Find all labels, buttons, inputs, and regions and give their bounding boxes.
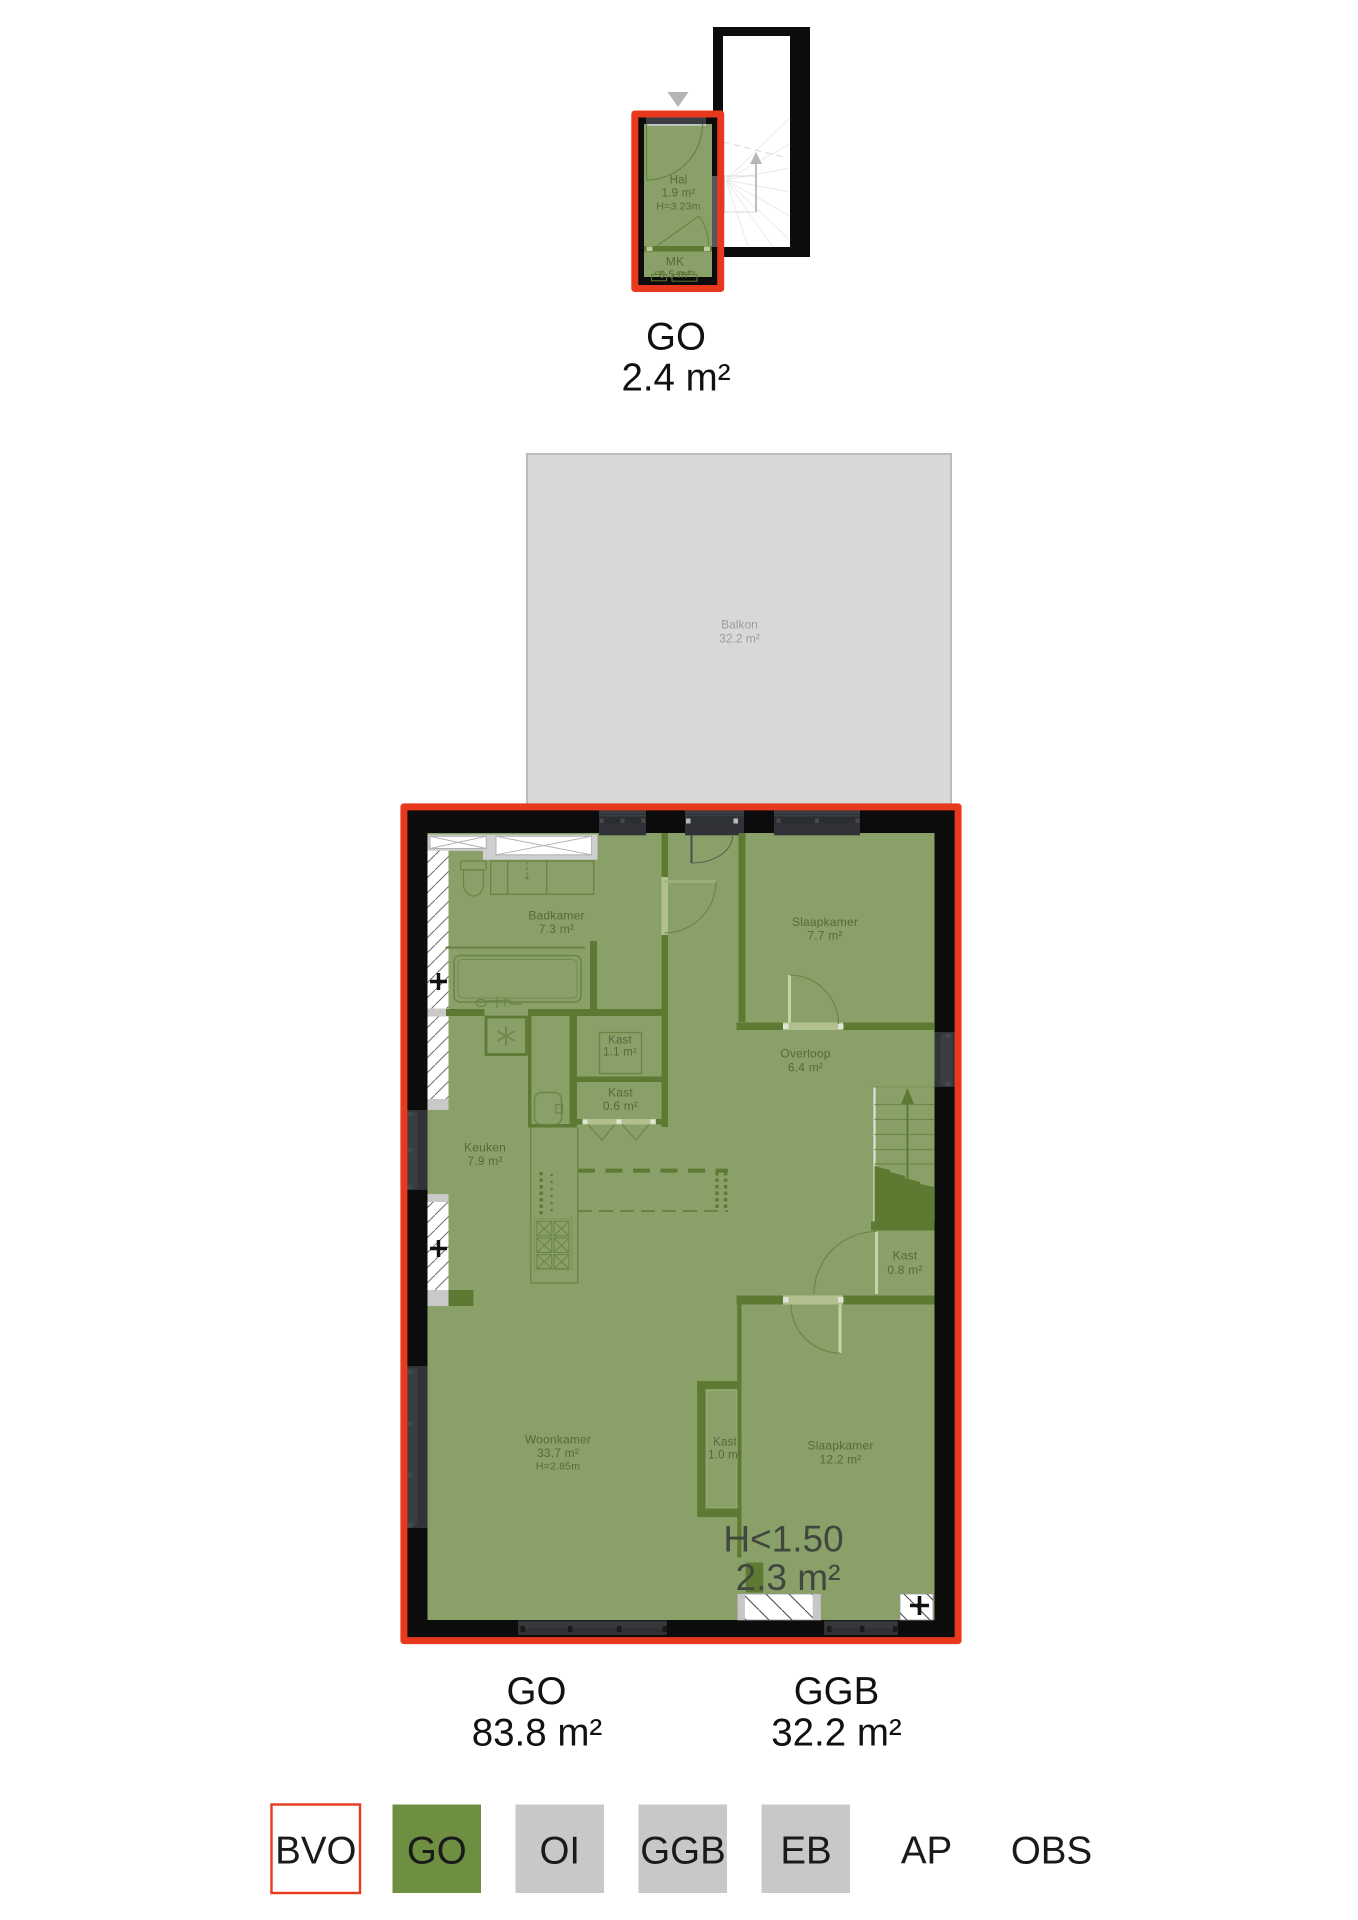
svg-text:H=3.23m: H=3.23m — [656, 201, 700, 213]
svg-text:Kast: Kast — [713, 1437, 737, 1449]
svg-text:BVO: BVO — [275, 1830, 356, 1873]
svg-text:12.2 m²: 12.2 m² — [819, 1453, 861, 1467]
svg-text:GGB: GGB — [794, 1670, 880, 1713]
svg-text:AP: AP — [901, 1830, 952, 1873]
svg-text:EB: EB — [780, 1830, 831, 1873]
svg-text:32.2 m²: 32.2 m² — [719, 632, 760, 646]
svg-text:1.0 m²: 1.0 m² — [708, 1450, 742, 1462]
svg-text:MK: MK — [666, 255, 684, 269]
svg-text:Hal: Hal — [670, 175, 688, 187]
svg-text:33.7 m²: 33.7 m² — [537, 1446, 579, 1460]
svg-text:GGB: GGB — [640, 1830, 726, 1873]
svg-text:GO: GO — [507, 1670, 567, 1713]
svg-text:83.8 m²: 83.8 m² — [472, 1712, 603, 1755]
svg-text:6.4 m²: 6.4 m² — [788, 1061, 823, 1075]
svg-text:32.2 m²: 32.2 m² — [771, 1712, 902, 1755]
svg-text:0.8 m²: 0.8 m² — [887, 1263, 922, 1277]
svg-text:H=2.85m: H=2.85m — [536, 1461, 580, 1473]
svg-text:2.3 m²: 2.3 m² — [736, 1557, 841, 1598]
svg-text:Overloop: Overloop — [780, 1047, 830, 1061]
svg-text:2.4 m²: 2.4 m² — [621, 357, 730, 400]
svg-text:1.1 m²: 1.1 m² — [603, 1047, 637, 1059]
svg-text:7.9 m²: 7.9 m² — [467, 1154, 502, 1168]
svg-text:Kast: Kast — [893, 1249, 918, 1263]
svg-text:0.6 m²: 0.6 m² — [603, 1099, 638, 1113]
svg-text:Badkamer: Badkamer — [528, 909, 584, 923]
svg-text:7.3 m²: 7.3 m² — [539, 922, 574, 936]
svg-text:Woonkamer: Woonkamer — [525, 1433, 591, 1447]
svg-text:Slaapkamer: Slaapkamer — [792, 915, 858, 929]
svg-text:7.7 m²: 7.7 m² — [807, 929, 842, 943]
svg-text:H<1.50: H<1.50 — [723, 1519, 843, 1560]
svg-text:Slaapkamer: Slaapkamer — [807, 1439, 873, 1453]
svg-text:OBS: OBS — [1011, 1830, 1092, 1873]
svg-text:Balkon: Balkon — [721, 618, 758, 632]
svg-text:Kast: Kast — [608, 1035, 632, 1047]
svg-text:OI: OI — [539, 1830, 580, 1873]
svg-text:Kast: Kast — [608, 1086, 633, 1100]
svg-text:1.9 m²: 1.9 m² — [662, 188, 696, 200]
svg-text:GO: GO — [646, 316, 706, 359]
svg-text:Keuken: Keuken — [464, 1141, 506, 1155]
svg-text:GO: GO — [407, 1830, 467, 1873]
